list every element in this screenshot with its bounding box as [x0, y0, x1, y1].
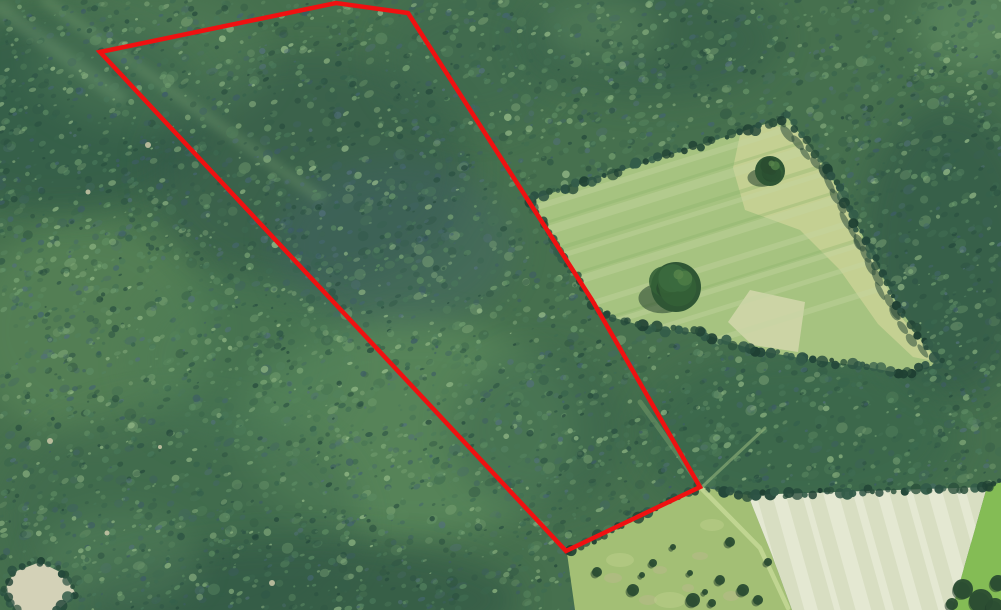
clearing-dot	[145, 142, 151, 148]
bush	[592, 567, 602, 577]
bush	[708, 599, 716, 607]
bush	[670, 544, 676, 550]
clearing-dot	[47, 438, 53, 444]
bush	[764, 558, 772, 566]
bush	[753, 595, 763, 605]
aerial-screenshot	[0, 0, 1001, 610]
bush	[627, 584, 639, 596]
bush	[702, 589, 708, 595]
bush	[953, 579, 973, 599]
bush	[946, 598, 958, 610]
clearing-dot	[269, 580, 275, 586]
bush	[639, 572, 645, 578]
aerial-photo	[0, 0, 1001, 610]
bush	[715, 575, 725, 585]
bush	[686, 593, 700, 607]
bush	[725, 537, 735, 547]
clearing-dot	[158, 445, 162, 449]
bush	[737, 584, 749, 596]
clearing-dot	[105, 531, 110, 536]
clearing-dot	[86, 190, 91, 195]
bush	[649, 559, 657, 567]
bush	[687, 570, 693, 576]
